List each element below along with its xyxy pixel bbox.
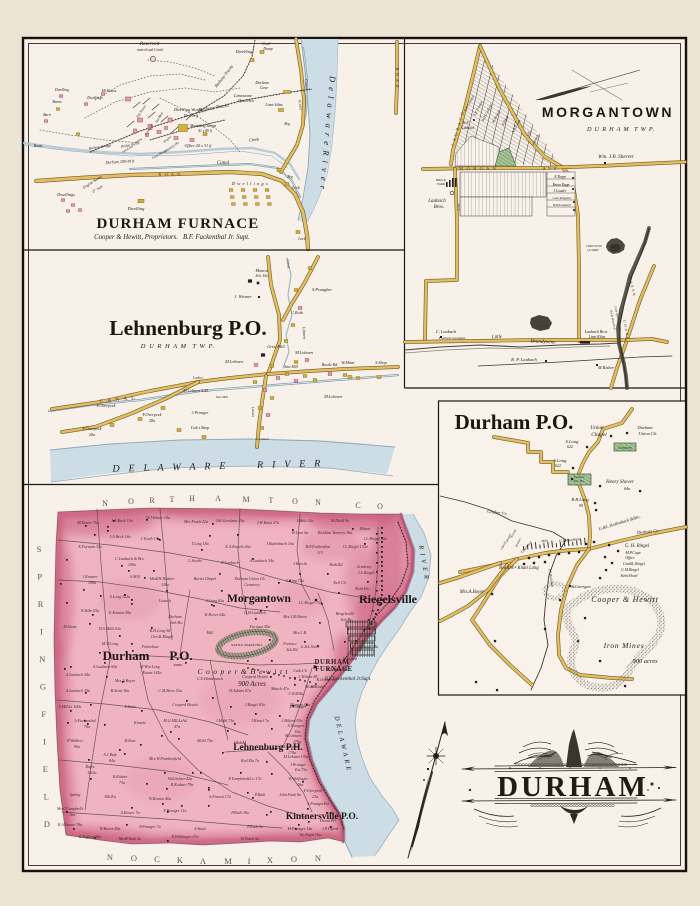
- svg-text:R: R: [38, 599, 44, 609]
- svg-text:K.F.: K.F.: [462, 121, 469, 125]
- svg-text:J.L.Riegel 14a: J.L.Riegel 14a: [363, 536, 386, 541]
- svg-text:N: N: [39, 654, 45, 664]
- svg-text:S.Bila 32a: S.Bila 32a: [297, 518, 314, 523]
- svg-text:Lehnenburg P.O.: Lehnenburg P.O.: [109, 316, 267, 340]
- svg-text:S.Prangher: S.Prangher: [312, 287, 332, 292]
- svg-text:Mitzae: Mitzae: [359, 526, 371, 531]
- svg-text:Durham Union Ch.: Durham Union Ch.: [234, 576, 266, 581]
- svg-text:S.Shop: S.Shop: [375, 360, 387, 365]
- svg-text:J.Knecht: J.Knecht: [293, 561, 308, 566]
- svg-text:Cath.Ch: Cath.Ch: [293, 668, 306, 673]
- svg-text:90a: 90a: [74, 744, 80, 749]
- svg-text:28a: 28a: [89, 432, 95, 437]
- svg-text:Laubach Bros: Laubach Bros: [584, 329, 608, 334]
- svg-text:Coal: Coal: [262, 42, 269, 46]
- svg-text:M.Risher: M.Risher: [597, 365, 615, 370]
- svg-text:Roth Ho: Roth Ho: [354, 586, 368, 591]
- svg-text:J.L.Riegel: J.L.Riegel: [358, 570, 375, 575]
- svg-text:O: O: [131, 853, 137, 863]
- svg-text:Cab.t Shop: Cab.t Shop: [191, 425, 210, 430]
- svg-text:Academy: Academy: [356, 564, 372, 569]
- svg-text:Dwellings: Dwellings: [86, 96, 103, 100]
- svg-text:John.Funk 8a: John.Funk 8a: [279, 792, 301, 797]
- svg-text:G.&L.Stove: G.&L.Stove: [301, 644, 320, 649]
- svg-text:Ohl Gorslene 29a: Ohl Gorslene 29a: [216, 518, 245, 523]
- svg-text:Morgantown: Morgantown: [227, 593, 291, 605]
- svg-text:O: O: [292, 497, 298, 506]
- svg-text:L: L: [44, 792, 49, 802]
- svg-text:T.Ling 18a: T.Ling 18a: [191, 541, 208, 546]
- svg-text:900 Acres: 900 Acres: [238, 680, 266, 688]
- svg-text:Union: Union: [590, 425, 604, 431]
- svg-text:M.Lehnen: M.Lehnen: [224, 359, 243, 364]
- svg-text:J.W.Kinst 27a: J.W.Kinst 27a: [257, 520, 279, 525]
- svg-text:L.Stocks: L.Stocks: [187, 558, 202, 563]
- svg-text:P: P: [37, 572, 42, 582]
- svg-text:A.Fackenthal: A.Fackenthal: [73, 718, 96, 723]
- svg-text:Est.: Est.: [294, 729, 301, 734]
- svg-text:Reservoir: Reservoir: [139, 41, 161, 47]
- svg-text:Lehnen: Lehnen: [302, 326, 308, 339]
- svg-text:O: O: [128, 497, 134, 506]
- svg-text:AVE: AVE: [456, 203, 461, 211]
- svg-text:F.Overpeck: F.Overpeck: [81, 426, 101, 431]
- svg-text:S.Franck 17a: S.Franck 17a: [209, 794, 231, 799]
- svg-text:Brg: Brg: [287, 175, 292, 179]
- svg-text:M.Kinter 76a: M.Kinter 76a: [76, 520, 99, 525]
- svg-text:E.A.Knecht 46a: E.A.Knecht 46a: [224, 544, 250, 549]
- svg-text:Lissach: Lissach: [158, 598, 171, 603]
- svg-text:Office 20 x 31 ft: Office 20 x 31 ft: [185, 143, 213, 148]
- svg-text:M.Lehnen S.M.: M.Lehnen S.M.: [182, 388, 209, 393]
- svg-text:J.Wilson 88: J.Wilson 88: [299, 674, 318, 679]
- svg-text:Barns: Barns: [52, 100, 62, 104]
- svg-text:M.Pranger 14a: M.Pranger 14a: [287, 826, 313, 831]
- svg-text:23a: 23a: [312, 794, 318, 799]
- svg-text:Creek: Creek: [286, 259, 291, 269]
- svg-text:J.W.Mills: J.W.Mills: [289, 691, 304, 696]
- svg-text:Ricklina Tannery 16a: Ricklina Tannery 16a: [317, 530, 352, 535]
- svg-text:H.R.Laubach: H.R.Laubach: [552, 203, 571, 207]
- svg-text:C: C: [154, 854, 160, 864]
- svg-text:16a: 16a: [69, 812, 75, 817]
- svg-text:Laubach: Laubach: [461, 126, 475, 130]
- svg-text:P.Ruth 5a: P.Ruth 5a: [246, 824, 262, 829]
- svg-text:Durham: Durham: [103, 648, 150, 663]
- svg-text:J.L.Riegel 172a: J.L.Riegel 172a: [342, 544, 367, 549]
- svg-text:J.Rudenbach 16a: J.Rudenbach 16a: [266, 541, 294, 546]
- svg-text:DURHAM: DURHAM: [497, 771, 649, 803]
- svg-text:Gra&L.Ringel: Gra&L.Ringel: [623, 562, 645, 566]
- svg-text:91 x 16 ft: 91 x 16 ft: [184, 114, 199, 118]
- svg-text:G.M.Ringel: G.M.Ringel: [621, 568, 639, 572]
- svg-text:H.Adams 67a: H.Adams 67a: [228, 688, 251, 693]
- svg-text:R.Eigleys 56a: R.Eigleys 56a: [78, 834, 101, 839]
- svg-text:Mrs.L.B.: Mrs.L.B.: [292, 630, 307, 635]
- svg-text:Rufes: Rufes: [85, 764, 95, 769]
- svg-text:I: I: [248, 856, 251, 866]
- svg-text:M.P.Copa: M.P.Copa: [624, 551, 640, 555]
- svg-text:Dwellings: Dwellings: [56, 192, 75, 197]
- svg-text:DURHAM: DURHAM: [315, 659, 350, 666]
- svg-text:C.E.Hindernach: C.E.Hindernach: [197, 676, 223, 681]
- svg-text:Boats: Boats: [34, 144, 43, 148]
- svg-text:Furnace: Furnace: [282, 641, 297, 646]
- svg-text:P.O.: P.O.: [169, 648, 192, 663]
- svg-text:R.H.Long 9d: R.H.Long 9d: [149, 628, 172, 633]
- svg-text:C.Roth: C.Roth: [291, 310, 303, 315]
- svg-text:Furnace 40a: Furnace 40a: [249, 624, 271, 629]
- svg-text:28a: 28a: [149, 418, 155, 423]
- svg-text:M O R G A N: M O R G A N: [459, 166, 497, 171]
- svg-text:Mauch 47a: Mauch 47a: [270, 686, 289, 691]
- svg-text:M'Wm.Long: M'Wm.Long: [139, 664, 160, 669]
- svg-text:F.Tompkins&Co 17a: F.Tompkins&Co 17a: [228, 776, 262, 781]
- svg-text:Quarries: Quarries: [238, 98, 254, 103]
- svg-text:A.Laubach 60a: A.Laubach 60a: [92, 664, 117, 669]
- svg-text:Geo.K.Ringel: Geo.K.Ringel: [151, 634, 174, 639]
- svg-text:129a: 129a: [161, 582, 169, 587]
- svg-text:S.PrangerEst: S.PrangerEst: [307, 801, 329, 806]
- svg-text:A.Laubach 39a: A.Laubach 39a: [65, 688, 90, 693]
- svg-text:Lehnen: Lehnen: [251, 406, 255, 417]
- svg-text:D U R H A M T W P.: D U R H A M T W P.: [140, 343, 216, 350]
- svg-text:Estate 145a: Estate 145a: [142, 670, 162, 675]
- svg-text:C o o p e r & H e w i t t: C o o p e r & H e w i t t: [198, 667, 289, 676]
- svg-text:M.Lehnen: M.Lehnen: [323, 394, 342, 399]
- svg-text:A: A: [215, 494, 221, 503]
- svg-text:K.Furman 32a: K.Furman 32a: [77, 544, 102, 549]
- svg-text:Vip.Rapd 16a: Vip.Rapd 16a: [299, 832, 321, 837]
- svg-text:I: I: [40, 627, 43, 637]
- svg-text:Riegelsville: Riegelsville: [359, 592, 418, 606]
- svg-text:78a: 78a: [84, 724, 90, 729]
- svg-text:A.Laubach 54a: A.Laubach 54a: [65, 672, 90, 677]
- svg-text:16a: 16a: [297, 782, 303, 787]
- svg-text:M.W.Long: M.W.Long: [101, 641, 119, 646]
- svg-text:J.Pranger: J.Pranger: [192, 410, 209, 415]
- svg-text:Kintnersville P.O.: Kintnersville P.O.: [286, 812, 358, 822]
- svg-text:J. Wismer: J. Wismer: [234, 294, 252, 299]
- svg-text:S.Long 122a: S.Long 122a: [110, 594, 130, 599]
- svg-text:M.Rund 34a: M.Rund 34a: [357, 644, 378, 649]
- svg-text:Cooperd Hewitt: Cooperd Hewitt: [172, 702, 198, 707]
- svg-text:30h.Ka: 30h.Ka: [104, 794, 116, 799]
- svg-text:N: N: [102, 499, 108, 508]
- svg-text:Wm. J.B. Sherrer: Wm. J.B. Sherrer: [598, 154, 635, 160]
- svg-text:Little: Little: [491, 335, 503, 341]
- svg-text:J.Kramer: J.Kramer: [82, 574, 98, 579]
- svg-text:Lehnenburg P.H.: Lehnenburg P.H.: [233, 743, 303, 753]
- svg-text:W.J.Elmar 14a: W.J.Elmar 14a: [146, 515, 170, 520]
- svg-text:Iron Mines: Iron Mines: [603, 641, 645, 650]
- svg-text:H: H: [189, 494, 195, 503]
- svg-text:41 x 89 ft: 41 x 89 ft: [198, 129, 212, 133]
- svg-text:W.Trach 5a: W.Trach 5a: [241, 836, 259, 841]
- svg-text:Grist Mill: Grist Mill: [267, 344, 285, 349]
- svg-text:J.P.Tilferd: J.P.Tilferd: [322, 826, 339, 831]
- svg-text:Mrs.W.Frankenfield: Mrs.W.Frankenfield: [148, 756, 182, 761]
- svg-text:J.Kinsel 7a: J.Kinsel 7a: [251, 718, 269, 723]
- svg-text:R.Wildanger 47a: R.Wildanger 47a: [170, 834, 198, 839]
- svg-text:F.Pranger 11a: F.Pranger 11a: [163, 808, 187, 813]
- svg-text:Ked.Ela 7a: Ked.Ela 7a: [240, 758, 259, 763]
- svg-text:622: 622: [567, 444, 573, 449]
- svg-text:Cemetery: Cemetery: [618, 446, 632, 450]
- svg-text:W.Lyne 6a: W.Lyne 6a: [292, 530, 309, 535]
- svg-text:G.H.Laubach: G.H.Laubach: [244, 610, 266, 615]
- svg-text:W.Wolfinger: W.Wolfinger: [288, 776, 308, 781]
- svg-text:new dated: new dated: [255, 437, 268, 441]
- svg-text:W.Kibe 65a: W.Kibe 65a: [81, 608, 100, 613]
- svg-text:Brian Rapp: Brian Rapp: [553, 183, 570, 187]
- svg-text:Brg: Brg: [284, 122, 289, 126]
- svg-text:84a: 84a: [109, 758, 115, 763]
- svg-text:Sch.Ho.: Sch.Ho.: [341, 617, 354, 622]
- svg-text:C.M.Brow 55a: C.M.Brow 55a: [158, 688, 182, 693]
- svg-text:Mill: Mill: [206, 630, 215, 635]
- svg-text:90: 90: [579, 503, 583, 508]
- svg-text:Cemetery: Cemetery: [244, 582, 260, 587]
- svg-text:Lock: Lock: [297, 237, 306, 241]
- svg-text:R: R: [149, 496, 155, 505]
- svg-text:Mongta 47a: Mongta 47a: [289, 702, 309, 707]
- svg-text:B.F.Fackenthal: B.F.Fackenthal: [306, 544, 331, 549]
- svg-text:J.A.Beck 18a: J.A.Beck 18a: [110, 534, 131, 539]
- svg-text:H.Rute: H.Rute: [123, 738, 135, 743]
- svg-text:F.Pranger 7a: F.Pranger 7a: [138, 824, 160, 829]
- svg-text:Saw Mill: Saw Mill: [216, 395, 228, 399]
- svg-text:Est.75a: Est.75a: [294, 767, 307, 772]
- svg-text:M.G.MILLsAd: M.G.MILLsAd: [162, 718, 187, 723]
- svg-text:Cam.Kligathe: Cam.Kligathe: [553, 196, 572, 200]
- svg-text:B.F.Fackenthal Jr.Supt.: B.F.Fackenthal Jr.Supt.: [325, 677, 372, 682]
- svg-text:Sch.Rd: Sch.Rd: [286, 647, 298, 652]
- svg-text:M: M: [224, 856, 232, 866]
- svg-text:N: N: [315, 853, 321, 863]
- svg-text:47a: 47a: [174, 724, 180, 729]
- svg-text:E.Knauss 59a: E.Knauss 59a: [108, 610, 131, 615]
- svg-text:Saw Mill: Saw Mill: [284, 365, 298, 369]
- svg-text:S.MILLs 100a: S.MILLs 100a: [59, 704, 82, 709]
- svg-text:MORGANTOWN: MORGANTOWN: [542, 104, 674, 120]
- svg-text:N: N: [315, 498, 321, 507]
- svg-text:Dwelling: Dwelling: [235, 49, 254, 54]
- svg-text:P.Ruth: P.Ruth: [254, 792, 265, 797]
- svg-text:J.Mohl 73a: J.Mohl 73a: [216, 718, 234, 723]
- svg-text:A: A: [200, 856, 207, 866]
- svg-text:Lime kilns: Lime kilns: [264, 102, 283, 107]
- svg-text:K.Hover 64a: K.Hover 64a: [204, 612, 226, 617]
- svg-text:W.Mimr: W.Mimr: [341, 360, 355, 365]
- svg-text:B.Stom 36a: B.Stom 36a: [111, 688, 129, 693]
- svg-text:109a: 109a: [128, 562, 136, 567]
- svg-text:D: D: [44, 819, 50, 829]
- svg-text:K: K: [177, 855, 184, 865]
- svg-text:Mrs.J.B.Shives: Mrs.J.B.Shives: [282, 614, 307, 619]
- svg-text:108a: 108a: [88, 580, 96, 585]
- svg-text:Spring: Spring: [70, 792, 81, 797]
- svg-text:S.Staal: S.Staal: [194, 826, 206, 831]
- svg-text:Buriet Chapel: Buriet Chapel: [194, 576, 217, 581]
- svg-text:73a: 73a: [119, 780, 125, 785]
- svg-text:DURHAM FURNACE: DURHAM FURNACE: [96, 216, 259, 232]
- svg-text:Dwelling Works: Dwelling Works: [173, 107, 202, 112]
- svg-text:T.Stein: T.Stein: [125, 704, 136, 709]
- svg-text:Sch. Ho.: Sch. Ho.: [256, 274, 269, 278]
- svg-text:50.6a: 50.6a: [88, 770, 97, 775]
- svg-text:Bro&W.ⁿ Knan Long: Bro&W.ⁿ Knan Long: [499, 566, 539, 571]
- svg-text:C. Laubach: C. Laubach: [436, 329, 457, 334]
- svg-text:M.Diehl 9a: M.Diehl 9a: [330, 518, 349, 523]
- svg-text:Canal: Canal: [217, 161, 230, 166]
- svg-text:C: C: [355, 501, 360, 510]
- svg-text:Laubach: Laubach: [427, 199, 446, 204]
- svg-text:G: G: [40, 682, 46, 692]
- svg-text:R O A D: R O A D: [159, 172, 182, 177]
- svg-text:Laubach: Laubach: [536, 324, 549, 328]
- svg-text:Cooper & Hewitt: Cooper & Hewitt: [591, 595, 659, 604]
- svg-text:Kinsele: Kinsele: [133, 720, 146, 725]
- svg-text:Durham P.O.: Durham P.O.: [455, 410, 574, 434]
- svg-text:900 acres: 900 acres: [632, 658, 658, 665]
- svg-text:Dwelling: Dwelling: [54, 88, 69, 92]
- svg-text:X: X: [267, 855, 273, 865]
- svg-text:W.Bover 29a: W.Bover 29a: [100, 826, 121, 831]
- svg-text:Lime Kilns: Lime Kilns: [588, 335, 606, 339]
- svg-text:E.Rapp: E.Rapp: [553, 175, 565, 179]
- svg-text:W.Kinter: W.Kinter: [311, 684, 326, 689]
- svg-text:MrsR.Ruth 5a: MrsR.Ruth 5a: [118, 836, 141, 841]
- svg-text:S.Long 62a: S.Long 62a: [206, 598, 224, 603]
- svg-text:Monroe: Monroe: [254, 268, 268, 273]
- svg-text:E: E: [43, 764, 48, 774]
- svg-text:622: 622: [555, 463, 561, 468]
- svg-text:Mt House: Mt House: [101, 89, 117, 93]
- svg-text:S.Mill: S.Mill: [130, 574, 141, 579]
- svg-text:Durham: Durham: [636, 425, 653, 430]
- svg-text:MrsCCampbells: MrsCCampbells: [56, 806, 84, 811]
- svg-text:Union Ch.: Union Ch.: [638, 431, 657, 436]
- svg-text:J.L.Riegel 73a: J.L.Riegel 73a: [298, 600, 321, 605]
- svg-text:I: I: [43, 737, 46, 747]
- svg-text:S.Trangert: S.Trangert: [287, 723, 305, 728]
- svg-text:64a: 64a: [624, 486, 630, 491]
- svg-text:Office: Office: [625, 556, 635, 560]
- svg-text:RATTLE SNAKE HILL: RATTLE SNAKE HILL: [231, 643, 262, 647]
- svg-text:N: N: [107, 852, 113, 862]
- svg-text:L.Ling 76a: L.Ling 76a: [285, 578, 304, 583]
- svg-text:G. H. Ringel: G. H. Ringel: [625, 544, 650, 549]
- svg-text:S: S: [37, 544, 42, 554]
- svg-text:R.A.Stoner 78a: R.A.Stoner 78a: [57, 822, 82, 827]
- svg-text:Henry Shover: Henry Shover: [605, 480, 634, 485]
- svg-text:YARD: YARD: [437, 182, 446, 186]
- svg-text:A V E.: A V E.: [543, 166, 560, 171]
- svg-text:MINE: MINE: [174, 663, 183, 667]
- svg-text:Riegelsville: Riegelsville: [335, 611, 355, 616]
- svg-text:Dwelling: Dwelling: [127, 206, 146, 211]
- svg-text:A.Hower 7a: A.Hower 7a: [119, 810, 139, 815]
- svg-text:Wal.Selner 42a: Wal.Selner 42a: [168, 776, 192, 781]
- svg-text:J.Ringel 85a: J.Ringel 85a: [245, 702, 265, 707]
- svg-text:A.Laubach 54a: A.Laubach 54a: [249, 558, 274, 563]
- svg-text:Dump: Dump: [262, 47, 272, 51]
- svg-text:Practical Geologist: Practical Geologist: [438, 336, 467, 340]
- svg-text:D w e l l i n g s: D w e l l i n g s: [231, 181, 268, 186]
- svg-text:Cooper & Hewitt, Proprietors.: Cooper & Hewitt, Proprietors. B.F. Facke…: [94, 234, 250, 241]
- svg-text:R. P. Laubach: R. P. Laubach: [510, 357, 537, 362]
- svg-text:113: 113: [317, 550, 323, 555]
- svg-text:Bros.: Bros.: [434, 205, 445, 210]
- svg-text:P.Wolbert: P.Wolbert: [66, 738, 83, 743]
- svg-text:H.S.Mills 63a: H.S.Mills 63a: [98, 626, 121, 631]
- svg-text:J.Trach 17a: J.Trach 17a: [140, 536, 159, 541]
- svg-text:M.Lehnen: M.Lehnen: [294, 350, 313, 355]
- svg-text:Mohl 75a: Mohl 75a: [196, 738, 212, 743]
- svg-text:Moulding Shops: Moulding Shops: [189, 123, 217, 128]
- svg-text:Durham: Durham: [167, 614, 181, 619]
- svg-text:R O A D: R O A D: [395, 68, 400, 89]
- svg-text:R.Kodner 79a: R.Kodner 79a: [170, 782, 193, 787]
- svg-text:Creek: Creek: [249, 136, 261, 142]
- svg-text:Kell Ch.: Kell Ch.: [332, 580, 346, 585]
- svg-text:Lauber: Lauber: [192, 376, 204, 380]
- svg-text:Sch.Ho.: Sch.Ho.: [171, 620, 184, 625]
- svg-text:R.Kidner: R.Kidner: [112, 774, 128, 779]
- svg-text:O: O: [291, 854, 297, 864]
- svg-text:Barn: Barn: [43, 113, 51, 117]
- svg-text:metrol.oak Creek: metrol.oak Creek: [137, 48, 163, 52]
- svg-text:&Garrigan: &Garrigan: [571, 584, 590, 589]
- svg-text:MrsKW.Rodner: MrsKW.Rodner: [149, 576, 175, 581]
- svg-text:Mrs.A.Boyer: Mrs.A.Boyer: [114, 678, 136, 683]
- svg-text:F.Overpeck: F.Overpeck: [303, 788, 322, 793]
- svg-text:M: M: [242, 495, 249, 504]
- svg-text:Mrs Frack 22a: Mrs Frack 22a: [183, 519, 208, 524]
- svg-text:R.B.Long: R.B.Long: [570, 497, 589, 502]
- svg-text:Canal: Canal: [304, 79, 310, 90]
- svg-text:Roth.Rd: Roth.Rd: [329, 562, 344, 567]
- svg-text:Bastle Rd.: Bastle Rd.: [322, 362, 338, 367]
- svg-text:O: O: [377, 502, 383, 511]
- svg-text:C.Laubach & Bro.: C.Laubach & Bro.: [115, 556, 145, 561]
- svg-text:M.Stone: M.Stone: [62, 624, 76, 629]
- svg-text:Mrs.A.Boyer: Mrs.A.Boyer: [459, 590, 485, 595]
- svg-text:F: F: [41, 709, 46, 719]
- svg-text:J.A.Buck 15a: J.A.Buck 15a: [111, 518, 132, 523]
- svg-text:FURNACE: FURNACE: [315, 666, 352, 673]
- svg-text:Sch. Ho.: Sch. Ho.: [574, 479, 585, 483]
- svg-text:E.Laubach: E.Laubach: [220, 560, 238, 565]
- svg-text:F.Overpeck: F.Overpeck: [141, 412, 161, 417]
- svg-text:W.Krauss 46a: W.Krauss 46a: [149, 796, 171, 801]
- svg-text:Steln.Hotel: Steln.Hotel: [621, 574, 638, 578]
- svg-text:Lock: Lock: [291, 186, 300, 190]
- svg-text:T: T: [269, 496, 274, 505]
- svg-text:P.Ruth 38a: P.Ruth 38a: [230, 810, 248, 815]
- svg-text:Chapel: Chapel: [591, 432, 607, 438]
- svg-text:T: T: [170, 495, 175, 504]
- svg-text:Cave: Cave: [260, 85, 268, 90]
- svg-text:D U R H A M T W P.: D U R H A M T W P.: [586, 126, 655, 133]
- svg-text:QUARRY: QUARRY: [587, 248, 599, 252]
- svg-text:A.J.Rufe: A.J.Rufe: [102, 752, 117, 757]
- svg-text:J.Lauder: J.Lauder: [554, 189, 567, 193]
